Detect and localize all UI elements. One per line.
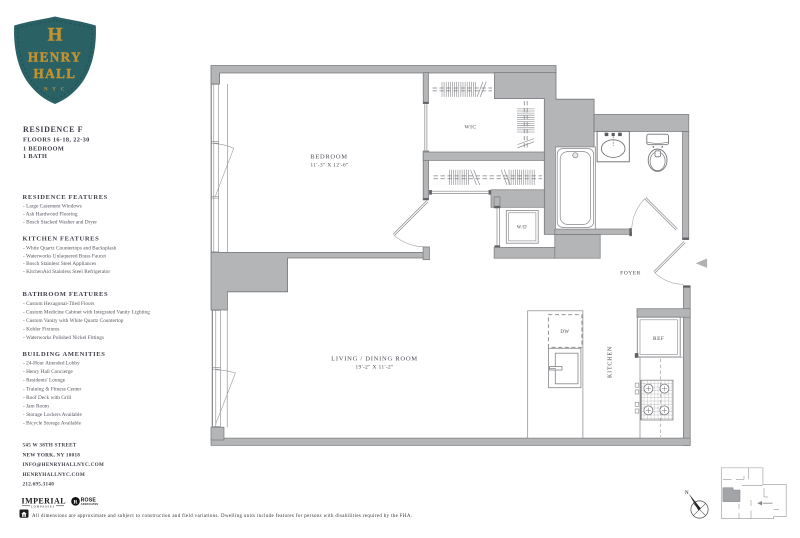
svg-text:INFO@HENRYHALLNYC.COM: INFO@HENRYHALLNYC.COM [23, 462, 105, 468]
svg-text:HENRY: HENRY [28, 50, 82, 65]
svg-text:545 W 38TH STREET: 545 W 38TH STREET [23, 443, 77, 449]
svg-text:- Bosch Stacked Washer and Dry: - Bosch Stacked Washer and Dryer [23, 219, 97, 225]
svg-text:DW: DW [560, 330, 569, 335]
svg-text:FOYER: FOYER [620, 271, 641, 277]
svg-text:KITCHEN: KITCHEN [608, 346, 614, 378]
svg-text:- Custom Vanity with White Qua: - Custom Vanity with White Quartz Counte… [23, 318, 124, 324]
svg-text:HALL: HALL [34, 66, 77, 81]
svg-text:N: N [685, 490, 689, 496]
svg-text:RESIDENCE FEATURES: RESIDENCE FEATURES [23, 194, 108, 201]
svg-text:- Henry Hall Concierge: - Henry Hall Concierge [23, 369, 73, 375]
svg-text:- Roof Deck with Grill: - Roof Deck with Grill [23, 394, 72, 401]
svg-text:212.695.3140: 212.695.3140 [23, 482, 55, 488]
svg-text:11'-3" X 12'-6": 11'-3" X 12'-6" [310, 162, 348, 168]
svg-text:1 BEDROOM: 1 BEDROOM [23, 145, 64, 152]
svg-text:FLOORS 16-18, 22-30: FLOORS 16-18, 22-30 [23, 137, 90, 144]
svg-text:1 BATH: 1 BATH [23, 153, 47, 160]
svg-text:N Y C: N Y C [44, 88, 66, 93]
svg-text:- Bicycle Storage Available: - Bicycle Storage Available [23, 420, 82, 426]
svg-text:BEDROOM: BEDROOM [310, 154, 347, 161]
svg-text:RESIDENCE F: RESIDENCE F [23, 125, 83, 134]
svg-text:All dimensions are approximate: All dimensions are approximate and subje… [32, 514, 412, 519]
svg-text:- Bosch Stainless Steel Applia: - Bosch Stainless Steel Appliances [23, 261, 96, 267]
svg-text:- Large Casement Windows: - Large Casement Windows [23, 204, 82, 210]
svg-text:COMPANIES: COMPANIES [31, 504, 55, 508]
svg-text:- Waterworks Polished Nickel F: - Waterworks Polished Nickel Fittings [23, 335, 104, 341]
svg-text:BUILDING AMENITIES: BUILDING AMENITIES [23, 351, 106, 358]
svg-text:- Ash Hardwood Flooring: - Ash Hardwood Flooring [23, 212, 78, 218]
svg-text:WIC: WIC [465, 125, 477, 131]
svg-text:NEW YORK, NY 10018: NEW YORK, NY 10018 [23, 452, 81, 458]
svg-text:- Training & Fitness Center: - Training & Fitness Center [23, 386, 82, 392]
svg-text:- 24-Hour Attended Lobby: - 24-Hour Attended Lobby [23, 361, 80, 367]
svg-text:- Waterworks Unlaquered Brass: - Waterworks Unlaquered Brass Faucet [23, 253, 107, 259]
svg-text:LIVING / DINING ROOM: LIVING / DINING ROOM [331, 356, 418, 363]
svg-text:W/D: W/D [517, 226, 527, 231]
svg-text:- KitchenAid Stainless Steel R: - KitchenAid Stainless Steel Refrigerato… [23, 268, 110, 275]
svg-text:- Kohler Fixtures: - Kohler Fixtures [23, 326, 59, 332]
svg-text:- White Quartz Countertops and: - White Quartz Countertops and Backsplas… [23, 246, 117, 252]
svg-text:HENRYHALLNYC.COM: HENRYHALLNYC.COM [23, 472, 85, 478]
svg-text:BATHROOM FEATURES: BATHROOM FEATURES [23, 291, 109, 298]
svg-text:REF: REF [653, 336, 664, 342]
svg-text:- Custom Hexagonal-Tiled Floor: - Custom Hexagonal-Tiled Floors [23, 301, 94, 307]
svg-text:- Custom Medicine Cabinet with: - Custom Medicine Cabinet with Integrate… [23, 309, 150, 315]
svg-text:- Storage Lockers Available: - Storage Lockers Available [23, 412, 83, 418]
svg-text:- Residents' Lounge: - Residents' Lounge [23, 378, 66, 384]
svg-text:ASSOCIATES: ASSOCIATES [81, 503, 99, 506]
svg-text:19'-2" X 11'-2": 19'-2" X 11'-2" [355, 365, 393, 371]
svg-text:- Jam Room: - Jam Room [23, 403, 50, 409]
svg-text:KITCHEN FEATURES: KITCHEN FEATURES [23, 236, 100, 243]
svg-text:H: H [48, 25, 63, 46]
